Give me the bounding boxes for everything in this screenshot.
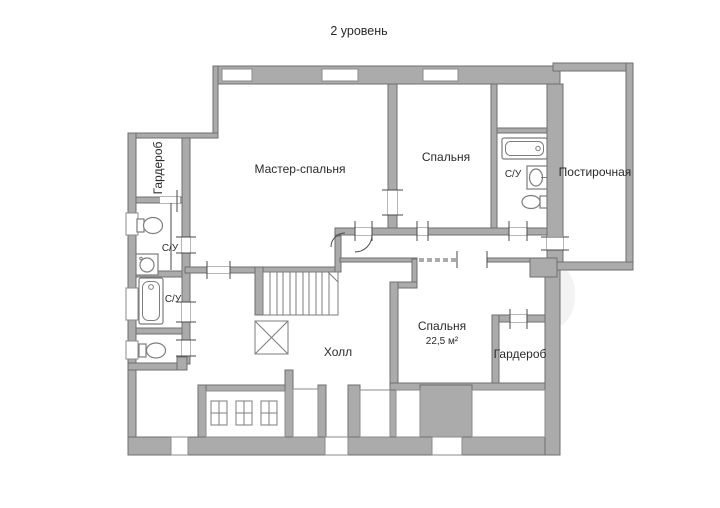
room-label-bedroom-second: Спальня xyxy=(418,319,466,333)
room-label-bath-right: С/У xyxy=(505,169,522,180)
wall-segment xyxy=(420,385,472,437)
sink-icon xyxy=(527,166,547,189)
wall-segment xyxy=(390,390,396,437)
door-opening xyxy=(207,267,230,273)
window-opening xyxy=(325,437,348,455)
dash-mark xyxy=(427,258,432,262)
wall-segment xyxy=(198,385,206,437)
dash-mark xyxy=(435,258,440,262)
wall-segment xyxy=(255,267,340,272)
door-opening xyxy=(510,315,527,322)
dash-mark xyxy=(451,258,456,262)
wall-segment xyxy=(491,84,497,228)
door-opening xyxy=(509,228,527,235)
wall-segment xyxy=(128,363,185,370)
wall-segment xyxy=(177,357,187,370)
door-opening xyxy=(182,302,190,322)
wall-segment xyxy=(213,66,560,84)
door-opening xyxy=(182,237,190,253)
wall-segment xyxy=(128,133,218,138)
wall-segment xyxy=(136,328,182,334)
window-opening xyxy=(126,288,138,320)
wall-segment xyxy=(255,267,263,315)
wall-segment xyxy=(340,258,417,262)
niche xyxy=(360,390,390,437)
door-opening xyxy=(457,255,487,265)
wall-segment xyxy=(553,63,633,71)
wall-segment xyxy=(545,262,560,455)
page-title: 2 уровень xyxy=(330,24,387,38)
wall-segment xyxy=(285,370,293,437)
window-niches xyxy=(206,389,545,437)
wall-segment xyxy=(412,259,417,285)
window-opening xyxy=(171,437,188,455)
door-opening xyxy=(547,236,563,250)
room-label-wardrobe-left: Гардероб xyxy=(151,141,165,194)
toilet-bowl xyxy=(522,196,540,209)
toilet-icon xyxy=(137,218,163,234)
door-opening xyxy=(417,228,428,235)
niche xyxy=(206,391,285,437)
toilet-tank xyxy=(139,344,146,357)
niche xyxy=(396,390,420,437)
room-label-bedroom-top: Спальня xyxy=(422,150,470,164)
toilet-tank xyxy=(540,196,547,208)
room-label-bath-lower-left: С/У xyxy=(165,294,182,305)
room-area-bedroom-second: 22,5 м² xyxy=(426,336,459,347)
wall-segment xyxy=(487,258,530,262)
window-opening xyxy=(432,437,462,455)
door-opening xyxy=(182,340,190,356)
floor-plan-drawing: Avito xyxy=(0,0,720,508)
door-opening xyxy=(388,190,397,215)
window-opening xyxy=(126,341,138,359)
window-opening xyxy=(222,69,252,81)
room-label-laundry: Постирочная xyxy=(559,165,632,179)
window-opening xyxy=(322,69,358,81)
toilet-icon xyxy=(522,196,547,209)
wall-segment xyxy=(198,385,293,391)
sink-icon xyxy=(136,254,158,275)
sink-basin xyxy=(140,258,154,272)
dash-mark xyxy=(443,258,448,262)
floor-plan-page: Avito xyxy=(0,0,720,508)
wall-segment xyxy=(390,282,398,385)
toilet-bowl xyxy=(144,218,163,234)
wall-segment xyxy=(335,236,341,272)
niche xyxy=(472,390,545,437)
wall-segment xyxy=(530,258,557,277)
wall-segment xyxy=(318,385,326,437)
bathtub-icon xyxy=(139,278,163,324)
toilet-bowl xyxy=(147,343,166,358)
niche xyxy=(293,389,318,437)
wall-segment xyxy=(348,385,360,437)
room-label-hall: Холл xyxy=(324,345,352,359)
room-label-master-bedroom: Мастер-спальня xyxy=(254,162,345,176)
dash-mark xyxy=(419,258,424,262)
wall-segment xyxy=(497,128,547,133)
sink-basin xyxy=(530,169,543,186)
toilet-icon xyxy=(139,343,166,358)
wall-segment xyxy=(213,66,218,138)
wall-segment xyxy=(553,262,633,270)
door-opening xyxy=(355,228,372,235)
window-opening xyxy=(423,69,458,81)
window-opening xyxy=(126,213,138,235)
bathtub-icon xyxy=(502,138,547,159)
room-label-bath-upper-left: С/У xyxy=(162,243,179,254)
room-label-wardrobe-right: Гардероб xyxy=(494,347,547,361)
